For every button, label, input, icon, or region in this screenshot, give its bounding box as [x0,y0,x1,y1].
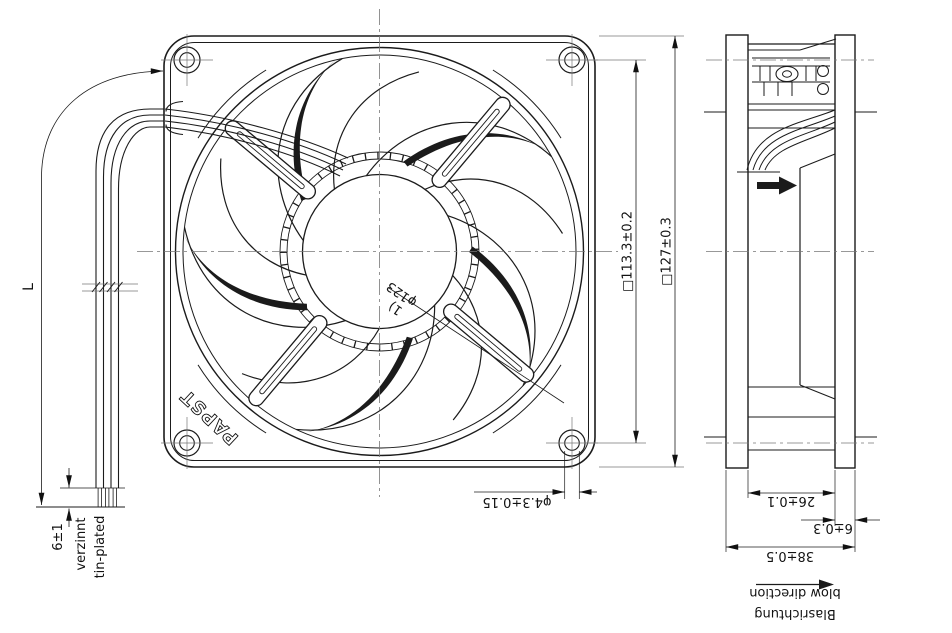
blow-direction-en-label: blow direction [749,585,841,600]
front-view: PAPST □113.3±0.2 □127±0.3 φ4.3±0.15 φ123… [21,9,684,578]
lead-wires [82,102,348,507]
blow-direction-de-label: Blasrichtung [754,606,835,621]
dimensions-side: 26±0.1 6±0.3 38±0.5 blow direction Blasr… [726,470,880,621]
dim-depth-label: 38±0.5 [766,548,814,563]
dim-flange-thickness-label: 6±0.3 [813,520,853,535]
dim-housing-width-label: 26±0.1 [767,493,815,508]
dim-lead-length-label: L [21,283,37,291]
drawing-canvas: PAPST □113.3±0.2 □127±0.3 φ4.3±0.15 φ123… [0,0,952,633]
centerlines-side [706,60,874,443]
tinned-wire-tips [98,488,116,507]
side-wires [737,110,835,172]
airflow-arrow-icon [757,177,797,195]
dim-frame-size-label: □127±0.3 [660,217,675,286]
dim-hole-diameter-label: φ4.3±0.15 [482,494,551,509]
impeller [156,38,563,464]
lead-finish-de-label: verzinnt [74,517,89,570]
hub-profile [748,154,835,450]
dim-tinned-length-label: 6±1 [51,523,66,550]
cable-break-symbol [82,282,138,292]
dim-hole-spacing-label: □113.3±0.2 [621,211,636,292]
lead-finish-en-label: tin-plated [93,516,108,579]
side-view: 26±0.1 6±0.3 38±0.5 blow direction Blasr… [704,35,880,621]
fan-dimensional-drawing: PAPST □113.3±0.2 □127±0.3 φ4.3±0.15 φ123… [0,0,952,633]
